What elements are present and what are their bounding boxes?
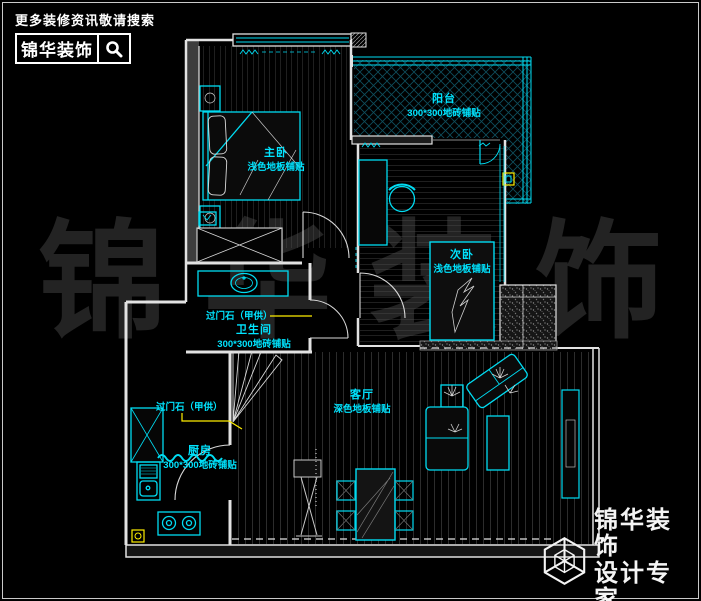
room-finish-spec: 300*300地砖铺贴	[407, 107, 480, 120]
annotation-bathroom-threshold: 过门石（甲供）	[206, 308, 273, 322]
room-label-bathroom: 卫生间 300*300地砖铺贴	[217, 323, 290, 352]
room-name: 客厅	[333, 388, 390, 403]
footer-brand: 锦华装饰 设计专家 WWW.JS-JINHUA.COM	[540, 508, 692, 601]
room-finish-spec: 300*300地砖铺贴	[163, 459, 236, 472]
header-brand: 更多装修资讯敬请搜索 锦华装饰	[15, 10, 155, 64]
room-finish-spec: 浅色地板铺贴	[247, 161, 304, 174]
search-icon	[97, 35, 129, 62]
room-name: 次卧	[433, 248, 490, 263]
room-finish-spec: 浅色地板铺贴	[433, 263, 490, 276]
room-finish-spec: 300*300地砖铺贴	[217, 338, 290, 351]
room-label-kitchen: 厨房 300*300地砖铺贴	[163, 444, 236, 473]
room-name: 卫生间	[217, 323, 290, 338]
room-name: 主卧	[247, 146, 304, 161]
room-name: 阳台	[407, 92, 480, 107]
footer-brand-subtitle: 设计专家	[594, 561, 692, 601]
room-label-living-room: 客厅 深色地板铺贴	[333, 388, 390, 417]
cube-icon	[540, 532, 589, 590]
brand-search-box[interactable]: 锦华装饰	[15, 33, 131, 64]
floorplan-page: 锦 华 装 饰	[0, 0, 701, 601]
room-label-second-bedroom: 次卧 浅色地板铺贴	[433, 248, 490, 277]
room-name: 厨房	[163, 444, 236, 459]
footer-brand-name: 锦华装饰	[594, 508, 692, 561]
brand-tagline: 更多装修资讯敬请搜索	[15, 10, 155, 29]
room-label-master-bedroom: 主卧 浅色地板铺贴	[247, 146, 304, 175]
wardrobe	[197, 228, 282, 262]
room-finish-spec: 深色地板铺贴	[333, 403, 390, 416]
kitchen-fixtures	[131, 408, 222, 542]
brand-name: 锦华装饰	[17, 35, 97, 62]
annotation-kitchen-threshold: 过门石（甲供）	[156, 399, 223, 413]
room-label-balcony: 阳台 300*300地砖铺贴	[407, 92, 480, 121]
